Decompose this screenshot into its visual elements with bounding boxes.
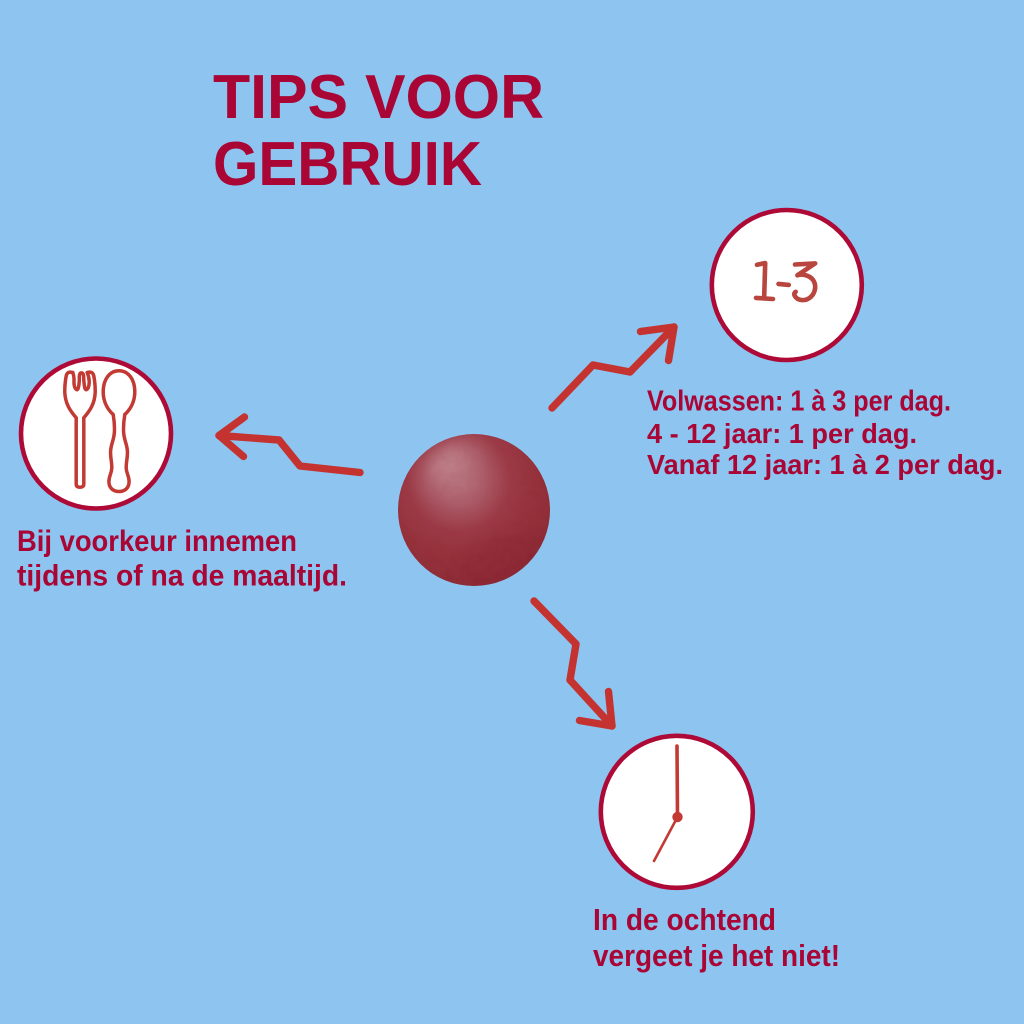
- svg-text:TIPS VOOR: TIPS VOOR: [213, 62, 544, 132]
- svg-text:vergeet je het niet!: vergeet je het niet!: [593, 939, 840, 973]
- svg-text:Bij voorkeur innemen: Bij voorkeur innemen: [17, 525, 297, 558]
- svg-text:tijdens of na de maaltijd.: tijdens of na de maaltijd.: [17, 560, 347, 593]
- svg-text:In de ochtend: In de ochtend: [593, 903, 776, 937]
- svg-text:GEBRUIK: GEBRUIK: [213, 129, 482, 199]
- svg-text:4 - 12 jaar: 1 per dag.: 4 - 12 jaar: 1 per dag.: [647, 418, 917, 449]
- svg-text:Vanaf 12 jaar: 1 à 2 per dag.: Vanaf 12 jaar: 1 à 2 per dag.: [647, 449, 1003, 480]
- svg-text:Volwassen: 1 à 3 per dag.: Volwassen: 1 à 3 per dag.: [647, 386, 951, 418]
